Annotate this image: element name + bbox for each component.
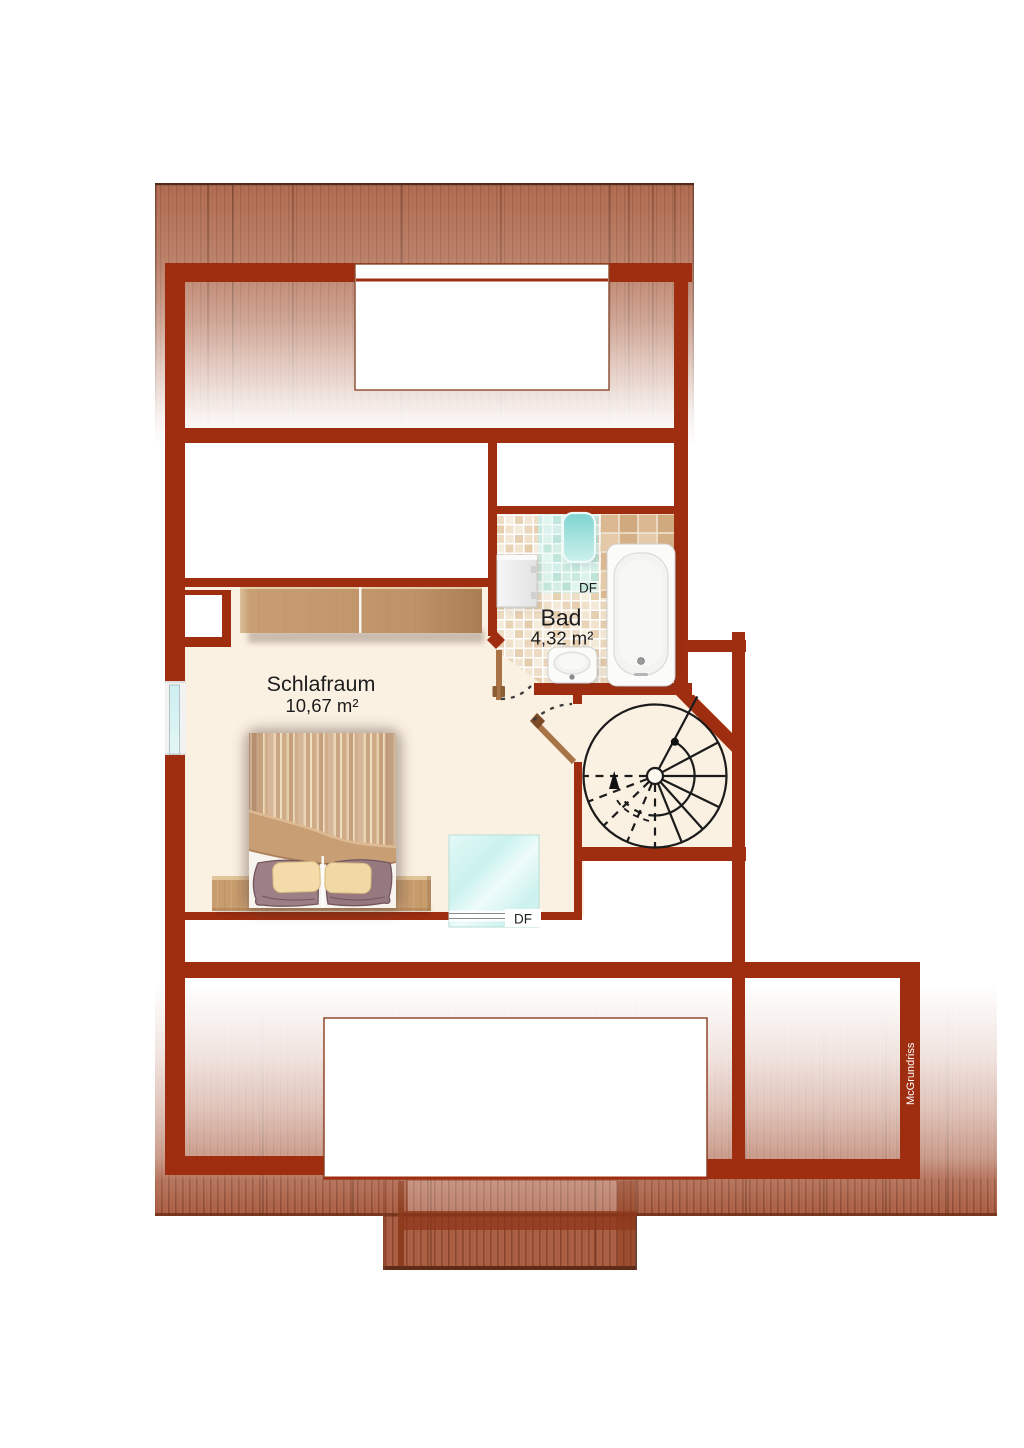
- svg-text:McGrundriss: McGrundriss: [905, 1042, 917, 1105]
- svg-text:Schlafraum: Schlafraum: [267, 672, 376, 696]
- svg-text:DF: DF: [514, 912, 532, 927]
- svg-text:4,32 m²: 4,32 m²: [531, 628, 594, 649]
- svg-text:10,67 m²: 10,67 m²: [285, 695, 358, 716]
- svg-text:DF: DF: [579, 581, 597, 596]
